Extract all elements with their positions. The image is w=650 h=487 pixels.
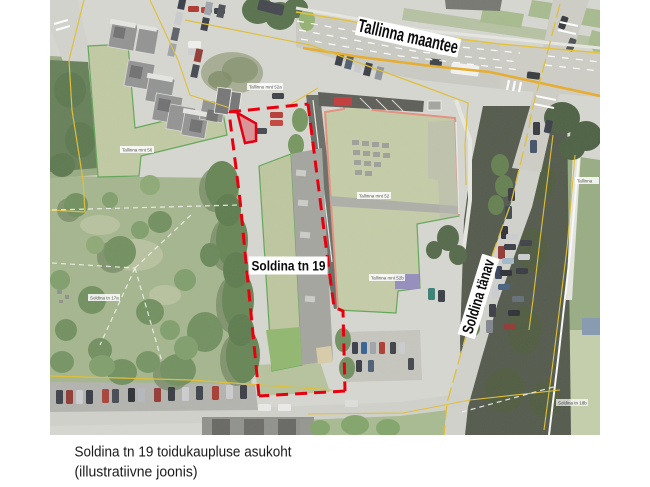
svg-text:Soldina tn 19 toidukaupluse as: Soldina tn 19 toidukaupluse asukoht — [75, 444, 293, 461]
svg-text:Soldina tn 19: Soldina tn 19 — [252, 258, 326, 274]
svg-text:Tallinna: Tallinna — [577, 179, 593, 184]
svg-text:Tallinnu mnt 52a: Tallinnu mnt 52a — [249, 85, 282, 90]
svg-text:Tallinna mnt 56: Tallinna mnt 56 — [122, 148, 153, 153]
svg-text:(illustratiivne joonis): (illustratiivne joonis) — [75, 464, 198, 481]
svg-text:Tallinna mnt 52b: Tallinna mnt 52b — [371, 276, 404, 281]
svg-text:Soldina tn 18b: Soldina tn 18b — [558, 401, 587, 406]
svg-text:Tallinna mnt 52: Tallinna mnt 52 — [359, 194, 390, 199]
svg-text:Soldina tn 17a: Soldina tn 17a — [90, 296, 119, 301]
